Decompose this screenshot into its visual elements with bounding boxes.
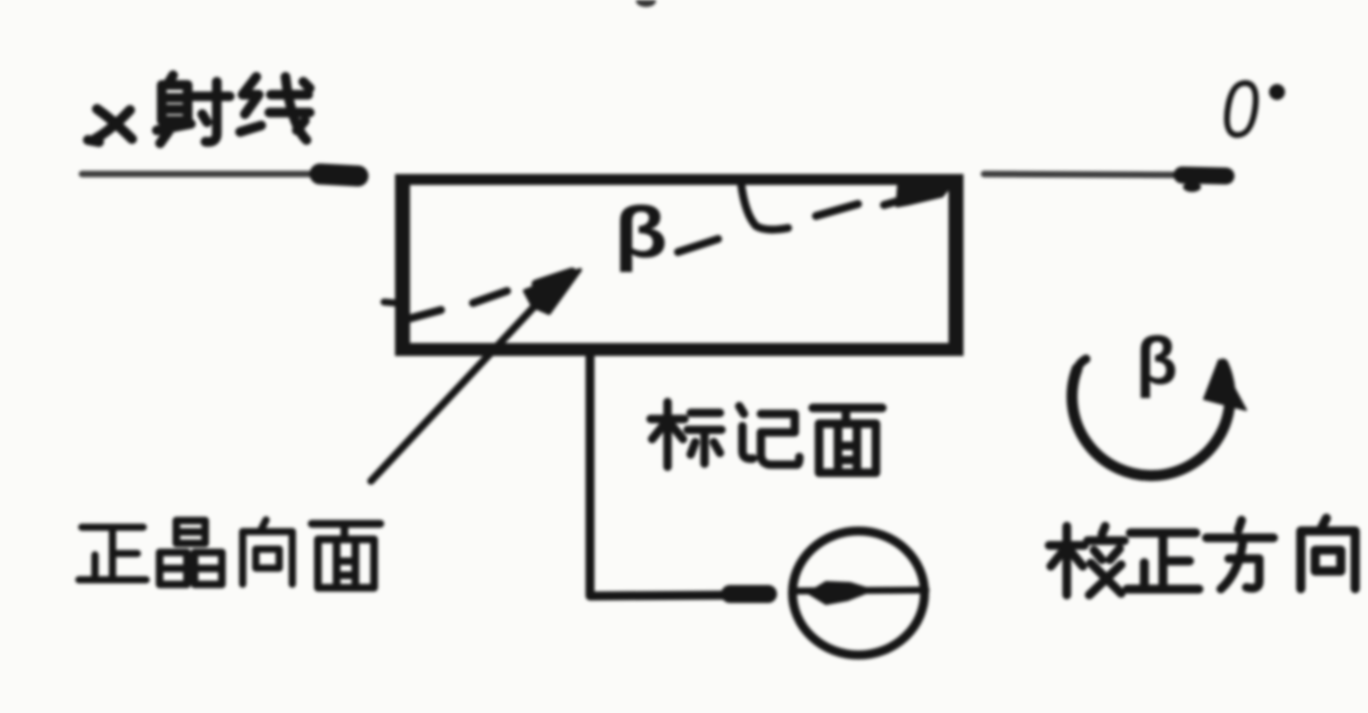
- svg-text:0: 0: [1221, 63, 1259, 155]
- svg-text:β: β: [614, 192, 668, 273]
- svg-text:β: β: [1136, 323, 1178, 399]
